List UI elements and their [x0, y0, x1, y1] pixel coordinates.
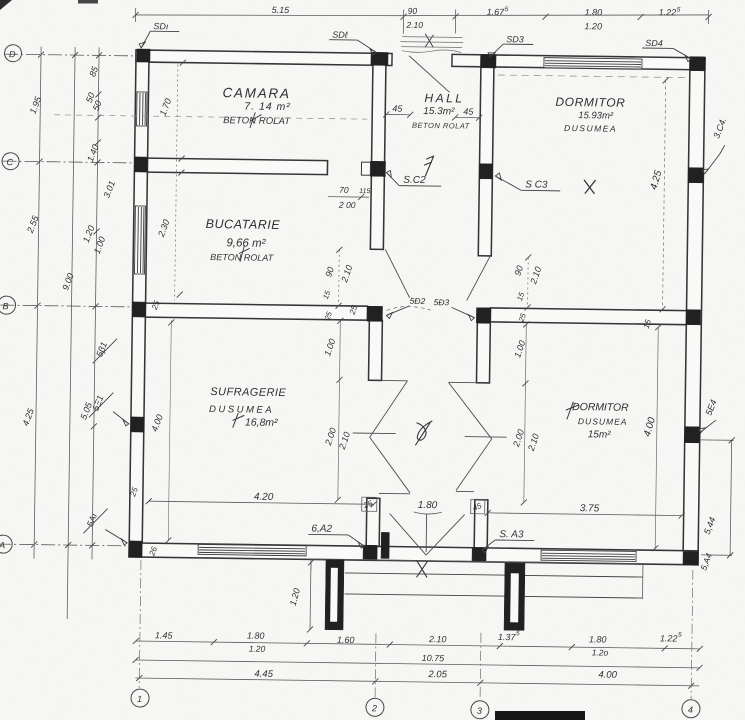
svg-text:A: A: [0, 540, 5, 550]
svg-text:45: 45: [463, 107, 474, 117]
svg-text:SUFRAGERIE: SUFRAGERIE: [210, 386, 288, 399]
svg-text:DORMITOR: DORMITOR: [572, 401, 630, 414]
svg-text:1.22: 1.22: [659, 7, 677, 17]
svg-text:DUSUMEA: DUSUMEA: [209, 404, 274, 416]
svg-text:1.80: 1.80: [589, 634, 607, 644]
svg-text:5: 5: [516, 630, 520, 637]
svg-text:4.45: 4.45: [254, 669, 273, 680]
svg-text:1.45: 1.45: [155, 630, 174, 640]
svg-text:5: 5: [505, 6, 509, 13]
svg-text:16,8m²: 16,8m²: [245, 417, 278, 429]
svg-text:DUSUMEA: DUSUMEA: [564, 123, 617, 134]
svg-text:1.80: 1.80: [585, 7, 603, 17]
svg-text:2: 2: [371, 703, 377, 713]
svg-text:2 00: 2 00: [338, 200, 356, 210]
svg-text:SDı: SDı: [153, 21, 169, 31]
svg-text:1.80: 1.80: [247, 631, 265, 641]
svg-text:S C3: S C3: [525, 179, 548, 190]
svg-text:4.00: 4.00: [598, 669, 617, 680]
svg-text:SD4: SD4: [645, 38, 663, 48]
svg-text:15.3m²: 15.3m²: [423, 106, 455, 117]
svg-text:SDℓ: SDℓ: [332, 30, 348, 40]
svg-text:5.15: 5.15: [272, 5, 291, 15]
svg-text:5: 5: [677, 6, 681, 13]
svg-text:B: B: [2, 301, 8, 311]
svg-text:45: 45: [392, 104, 403, 114]
svg-text:2.05: 2.05: [427, 669, 447, 680]
svg-text:1.60: 1.60: [337, 635, 355, 645]
svg-text:BETON ROLAT: BETON ROLAT: [412, 121, 471, 131]
svg-text:1.80: 1.80: [418, 500, 438, 511]
svg-text:3: 3: [477, 706, 482, 716]
svg-text:5Ð2: 5Ð2: [410, 296, 426, 306]
svg-text:1.22: 1.22: [660, 633, 678, 643]
svg-text:2.10: 2.10: [428, 634, 447, 644]
svg-text:5Ð3: 5Ð3: [434, 297, 450, 307]
svg-text:4: 4: [688, 705, 693, 715]
svg-text:15.93m²: 15.93m²: [578, 110, 614, 121]
svg-text:S.C2: S.C2: [403, 175, 426, 186]
svg-text:9,66 m²: 9,66 m²: [226, 237, 266, 250]
svg-text:HALL: HALL: [424, 91, 464, 106]
svg-text:7. 14 m²: 7. 14 m²: [244, 100, 291, 113]
svg-text:1.2o: 1.2o: [592, 647, 609, 657]
svg-text:SD3: SD3: [506, 34, 524, 44]
svg-text:1.37: 1.37: [498, 632, 517, 642]
svg-text:3.75: 3.75: [580, 503, 600, 514]
svg-text:15m²: 15m²: [588, 429, 612, 440]
svg-text:6,A2: 6,A2: [311, 523, 332, 534]
svg-text:5: 5: [678, 632, 682, 639]
svg-text:10.75: 10.75: [422, 653, 446, 663]
svg-text:CAMARA: CAMARA: [222, 85, 293, 101]
svg-text:C: C: [6, 157, 13, 167]
svg-text:1.20: 1.20: [249, 644, 266, 654]
svg-text:DUSUMEA: DUSUMEA: [578, 416, 628, 427]
svg-text:1.67: 1.67: [487, 7, 506, 17]
svg-text:1: 1: [137, 694, 142, 704]
svg-text:2.10: 2.10: [405, 20, 423, 30]
svg-text:70: 70: [339, 185, 349, 195]
svg-text:S. A3: S. A3: [499, 529, 524, 540]
svg-text:BUCATARIE: BUCATARIE: [206, 217, 282, 232]
svg-text:115: 115: [359, 188, 370, 195]
svg-text:D: D: [9, 49, 16, 59]
svg-text:DORMITOR: DORMITOR: [555, 95, 627, 110]
svg-text:1.20: 1.20: [584, 21, 602, 31]
svg-text:4.20: 4.20: [254, 492, 274, 503]
svg-text:90: 90: [408, 6, 418, 16]
